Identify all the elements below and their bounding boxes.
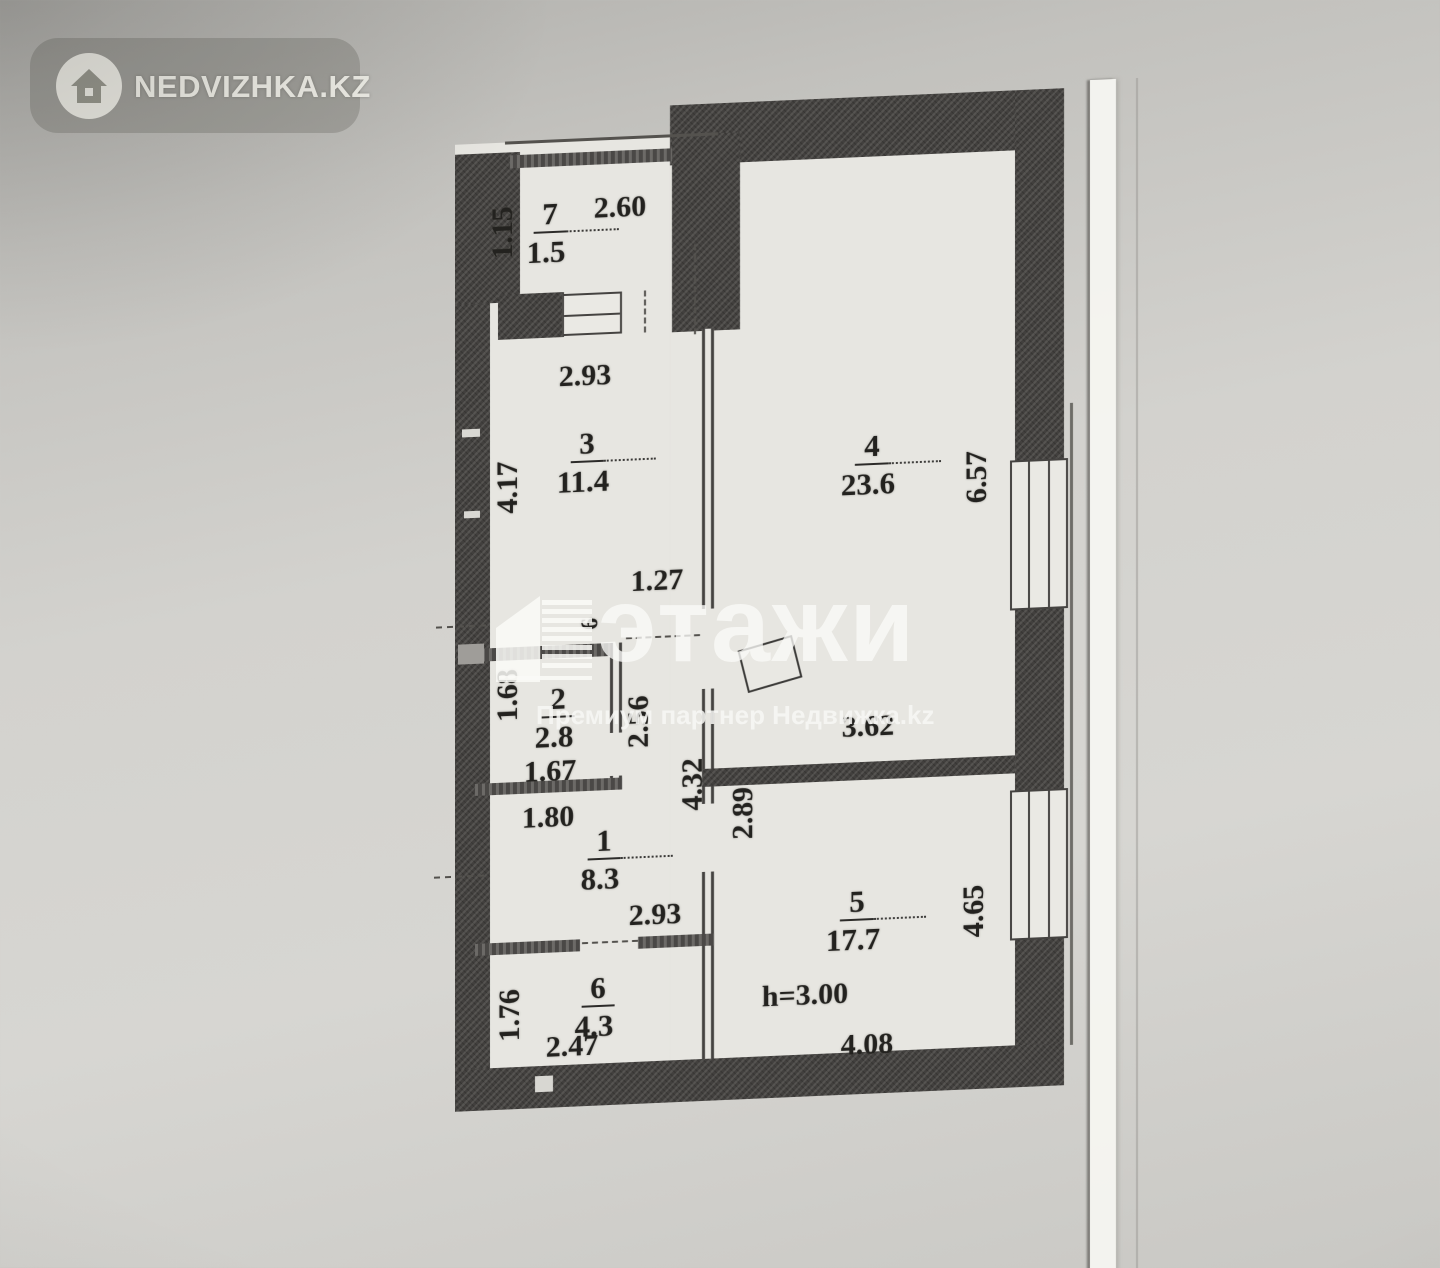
dash-line-top (694, 244, 696, 334)
floor-plan: 1.15 2.60 2.93 4.17 1.27 6 2.56 6.57 3.6… (450, 69, 1150, 1268)
notch-left-3 (458, 644, 484, 665)
balcony-window (562, 291, 622, 336)
paper-edge-line (1136, 78, 1138, 1268)
dim-balcony-width: 2.60 (594, 189, 647, 225)
room-tag-1: 1 8.3 (585, 824, 624, 895)
entrance-marker (535, 1076, 553, 1093)
room-tag-4: 4 23.6 (845, 429, 899, 500)
window-room4 (1010, 458, 1068, 611)
room-number: 1 (587, 824, 621, 860)
room-area: 1.5 (527, 235, 566, 268)
room-area: 23.6 (841, 467, 895, 500)
room-number: 4 (855, 429, 889, 465)
window-ledge-line (1070, 403, 1073, 1045)
dim-room5-width: 4.08 (841, 1027, 894, 1063)
door-gap-room5 (700, 803, 716, 872)
dim-room4-width: 3.62 (842, 709, 895, 745)
room-tag-7: 7 1.5 (531, 197, 570, 268)
room-number: 2 (541, 682, 575, 718)
dim-passage-width: 1.27 (631, 563, 684, 599)
nedvizhka-brand-text: NEDVIZHKA.KZ (134, 69, 371, 105)
room-area: 8.3 (581, 862, 620, 895)
paper-edge-strip (1090, 79, 1116, 1268)
dim-room4-height: 6.57 (960, 450, 994, 504)
nedvizhka-watermark-badge: NEDVIZHKA.KZ (30, 38, 360, 133)
dim-room3-height: 4.17 (491, 460, 525, 514)
dim-room5-wall: 2.89 (726, 786, 760, 840)
room-tag-6: 6 4.3 (579, 971, 618, 1042)
dim-hall-height: 4.32 (676, 757, 710, 811)
room-number: 6 (581, 971, 615, 1007)
dim-balcony-height: 1.15 (486, 206, 520, 260)
room-number: 7 (533, 197, 567, 233)
dim-hall-width-2: 2.93 (629, 897, 682, 933)
partition-main-upper (702, 328, 714, 769)
dim-room3-width: 2.93 (559, 358, 612, 394)
room-area: 2.8 (535, 720, 574, 753)
dim-room6-height: 1.76 (493, 988, 527, 1042)
room-tag-2: 2 2.8 (539, 682, 578, 753)
room-area: 11.4 (557, 465, 610, 498)
wall-corner-top (672, 132, 740, 332)
room-tag-5: 5 17.7 (830, 885, 884, 956)
door-gap-room4 (700, 608, 716, 689)
dim-room2-height: 1.68 (491, 668, 525, 722)
room-number: 5 (840, 885, 874, 921)
room-tag-3: 3 11.4 (561, 426, 614, 497)
dim-hall-width-1: 1.80 (522, 800, 575, 836)
ceiling-height-label: h=3.00 (762, 977, 848, 1015)
window-room5 (1010, 788, 1068, 941)
house-icon (56, 53, 122, 119)
wall-left (455, 303, 490, 1082)
dim-passage-note: 6 (578, 617, 605, 630)
door-gap-room6 (580, 935, 638, 954)
notch-left-2 (464, 511, 480, 519)
room-area: 4.3 (575, 1009, 614, 1042)
room-number: 3 (570, 427, 604, 463)
balcony-door-dash (644, 290, 646, 332)
dim-room5-height: 4.65 (957, 884, 991, 938)
notch-left-1 (462, 429, 480, 438)
dim-room2-width: 1.67 (524, 753, 577, 789)
wall-under-balcony (498, 292, 564, 340)
room-area: 17.7 (826, 923, 880, 956)
dim-passage-height: 2.56 (622, 695, 656, 749)
